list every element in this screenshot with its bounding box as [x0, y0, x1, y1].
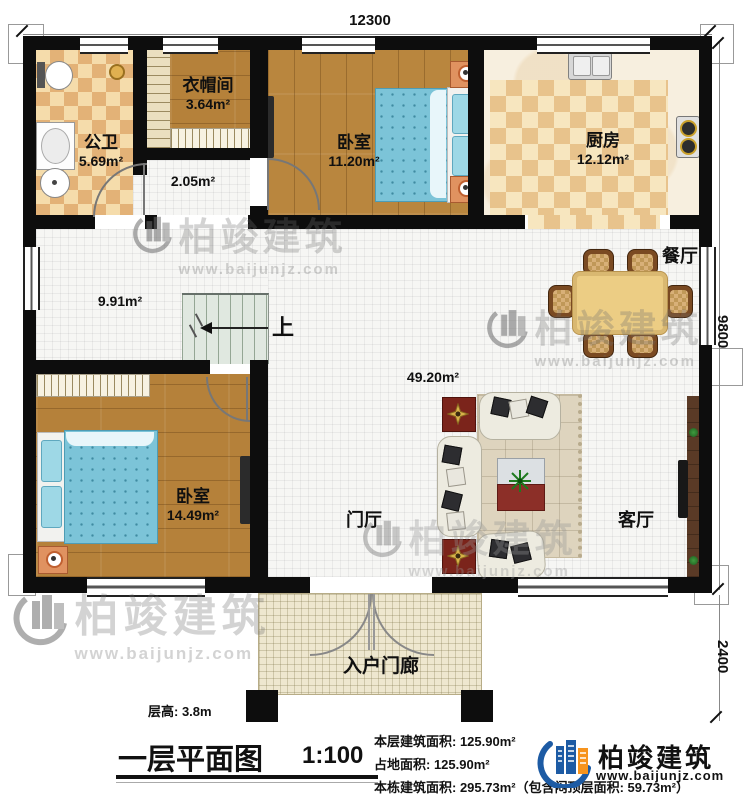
- wall: [375, 36, 537, 50]
- wardrobe-rail: [36, 374, 150, 397]
- floor-height-note: 层高: 3.8m: [148, 701, 212, 720]
- porch-label: 入户门廊: [328, 656, 434, 678]
- lamp-dot: [51, 556, 56, 561]
- toilet-tank: [37, 62, 45, 88]
- wall: [23, 360, 210, 374]
- wall: [432, 577, 518, 593]
- water-heater: [109, 64, 125, 80]
- wall: [468, 50, 484, 215]
- window: [87, 577, 205, 597]
- compass-star-icon: [447, 545, 469, 567]
- wall: [205, 577, 310, 593]
- window: [163, 36, 218, 54]
- bed-pillow: [41, 486, 62, 528]
- wall: [668, 577, 712, 593]
- plan-scale: 1:100: [302, 742, 363, 770]
- wall: [133, 148, 250, 160]
- stat-footprint-area: 占地面积: 125.90m²: [374, 754, 490, 773]
- company-logo-icon: [536, 734, 594, 788]
- sofa-cushion: [490, 396, 511, 417]
- bedroom1-door-leaf: [267, 158, 269, 210]
- tv-cabinet: [687, 396, 699, 577]
- title-underline: [116, 775, 378, 779]
- wall: [23, 577, 87, 593]
- dining-label: 餐厅: [652, 246, 708, 267]
- compass-star-icon: [447, 403, 469, 425]
- cloakroom-label: 衣帽间3.64m²: [166, 76, 250, 112]
- dining-chair: [583, 331, 614, 358]
- sofa-section: [475, 530, 546, 583]
- bed-pillow: [41, 440, 62, 482]
- wall: [248, 215, 478, 229]
- plant-dot: [689, 556, 698, 565]
- dining-chair: [627, 331, 658, 358]
- dimension-line-top: [23, 34, 712, 35]
- stove-burner: [680, 138, 697, 155]
- plant-dot: [689, 428, 698, 437]
- wall: [699, 345, 712, 593]
- bed-sheet-fold: [430, 90, 446, 198]
- hall-area-label: 2.05m²: [158, 173, 228, 189]
- bedroom2-label: 卧室14.49m²: [146, 487, 240, 523]
- wall: [128, 36, 163, 50]
- sofa-cushion: [489, 539, 509, 559]
- bathroom-label: 公卫5.69m²: [64, 133, 138, 169]
- cloakroom-hanger-rail: [170, 128, 254, 150]
- porch-pillar: [246, 690, 278, 722]
- bed-sheet-fold: [66, 432, 154, 446]
- entry-door-leaf: [368, 594, 370, 650]
- title-underline-thin: [116, 782, 378, 783]
- dimension-tick: [710, 711, 723, 724]
- corridor-area-label: 9.91m²: [85, 293, 155, 309]
- plant-icon: [507, 468, 533, 494]
- bed-mattress: [64, 430, 158, 544]
- window: [537, 36, 650, 54]
- dimension-depth: 9800: [714, 296, 731, 368]
- wall: [218, 36, 302, 50]
- window: [23, 247, 40, 310]
- wall: [23, 215, 95, 229]
- bathroom-door-leaf: [143, 163, 145, 215]
- wall: [145, 215, 157, 229]
- wall: [23, 310, 36, 577]
- wall: [250, 360, 268, 577]
- toilet-bowl: [45, 61, 73, 90]
- window: [302, 36, 375, 54]
- entry-door-leaf: [373, 594, 375, 650]
- sofa-cushion: [446, 467, 466, 487]
- stove-burner: [680, 120, 697, 137]
- wall: [250, 50, 268, 158]
- dining-chair: [665, 285, 693, 318]
- stair-direction-label: 上: [266, 315, 300, 340]
- kitchen-label: 厨房12.12m²: [556, 131, 650, 167]
- kitchen-sink-bowl: [573, 56, 591, 76]
- tv-screen: [678, 460, 688, 518]
- sofa-cushion: [442, 445, 463, 466]
- open-area-label: 49.20m²: [393, 369, 473, 385]
- stat-floor-area: 本层建筑面积: 125.90m²: [374, 731, 516, 750]
- stair-arrow-line: [212, 327, 268, 329]
- porch-pillar: [461, 690, 493, 722]
- dining-table: [572, 271, 668, 335]
- wall: [468, 215, 525, 229]
- wash-basin-drain: [52, 180, 57, 185]
- window: [518, 577, 668, 597]
- foyer-label: 门厅: [336, 510, 392, 531]
- bedroom1-label: 卧室11.20m²: [308, 133, 400, 169]
- living-label: 客厅: [608, 510, 664, 531]
- kitchen-sink-bowl: [592, 56, 610, 76]
- wall: [670, 215, 712, 229]
- bedroom2-door-leaf: [246, 377, 248, 420]
- dimension-porch-depth: 2400: [714, 626, 731, 688]
- sofa-cushion: [446, 511, 466, 531]
- floor-plan-canvas: 12300 9800 2400 上: [0, 0, 750, 804]
- company-website: www.baijunjz.com: [596, 768, 724, 783]
- dimension-width: 12300: [320, 12, 420, 29]
- window: [80, 36, 128, 54]
- plan-title: 一层平面图: [118, 736, 263, 778]
